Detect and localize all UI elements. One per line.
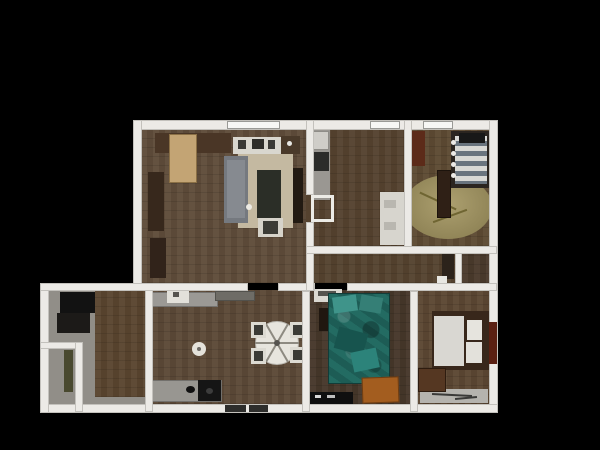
armchair-seat <box>263 221 278 234</box>
window-kitchen-dark <box>225 405 246 412</box>
wall-entry-kitchen <box>145 290 153 412</box>
bed2-pillow <box>467 320 482 340</box>
vanity-sink <box>384 200 396 208</box>
bookcase-upper <box>148 172 164 231</box>
wall-hall-closet <box>455 253 462 284</box>
hall-closet-floor <box>462 253 489 283</box>
bed1-knob <box>451 173 456 178</box>
wall-living-bath-upper <box>306 120 314 195</box>
dining-chair-seat <box>254 325 263 335</box>
counter-item <box>186 386 195 393</box>
console-speck <box>327 395 335 398</box>
dining-chair-seat <box>293 325 302 335</box>
bed2-pillow <box>466 342 482 363</box>
rug-bench <box>437 170 451 218</box>
floor-lamp-dot <box>246 204 252 210</box>
tv-panel <box>293 168 303 223</box>
window-bedroom1 <box>423 121 453 129</box>
console-item <box>268 140 275 149</box>
side-table-dot <box>287 141 292 146</box>
window-kitchen-dark <box>249 405 268 412</box>
entry-wood-panel <box>95 290 145 397</box>
bed2-dresser <box>418 368 446 392</box>
bed2-mattress <box>434 316 464 366</box>
teal-room-desk <box>362 376 400 403</box>
wall-kitchen-teal <box>302 291 310 412</box>
bed1-mattress <box>455 136 487 184</box>
stove-burner <box>206 388 213 394</box>
kitchen-stool-dot <box>197 347 201 351</box>
wall-living-bath-lower <box>306 222 314 291</box>
wall-entry-closet-v <box>75 342 83 412</box>
table-center-dot <box>274 340 280 346</box>
sofa-cushions <box>227 160 245 218</box>
bed1-knob <box>451 151 456 156</box>
teal-pillow <box>332 294 358 313</box>
wall-mid-a <box>40 283 248 291</box>
bed1-knob <box>451 140 456 145</box>
wall-right <box>489 120 498 412</box>
kitchen-sink-dot <box>173 292 179 297</box>
wall-bottom <box>40 404 498 413</box>
washing-machine <box>312 131 329 150</box>
coffee-chaise <box>257 170 281 218</box>
bookcase-lower <box>150 238 166 278</box>
red-wardrobe <box>411 131 425 166</box>
wall-bath-bed1 <box>404 120 412 253</box>
bed1-knob <box>451 162 456 167</box>
wall-teal-bed2 <box>410 291 418 412</box>
console-speck <box>315 395 321 398</box>
kitchen-counter-top-2 <box>215 291 255 301</box>
shower-door-frame <box>311 195 334 222</box>
window-living <box>227 121 280 129</box>
vanity-sink <box>384 222 396 230</box>
wall-left-upper <box>133 120 142 290</box>
entry-cabinet-top <box>60 292 95 313</box>
wall-mid-c <box>347 283 497 291</box>
console-item <box>238 140 246 149</box>
dining-chair-seat <box>254 351 263 361</box>
toilet <box>314 152 329 171</box>
tan-cabinet <box>169 134 197 183</box>
teal-room-console <box>309 392 353 404</box>
hallway-floor <box>313 253 455 283</box>
floorplan-canvas <box>0 0 600 450</box>
console-item <box>252 139 264 149</box>
dining-chair-seat <box>293 350 302 360</box>
window-bathroom <box>370 121 400 129</box>
bed1-dark-pillow <box>459 133 485 143</box>
closet-door <box>64 350 73 392</box>
entry-cabinet-bottom <box>57 313 90 333</box>
wall-hall-top <box>306 246 497 254</box>
wall-art-red <box>489 322 497 364</box>
